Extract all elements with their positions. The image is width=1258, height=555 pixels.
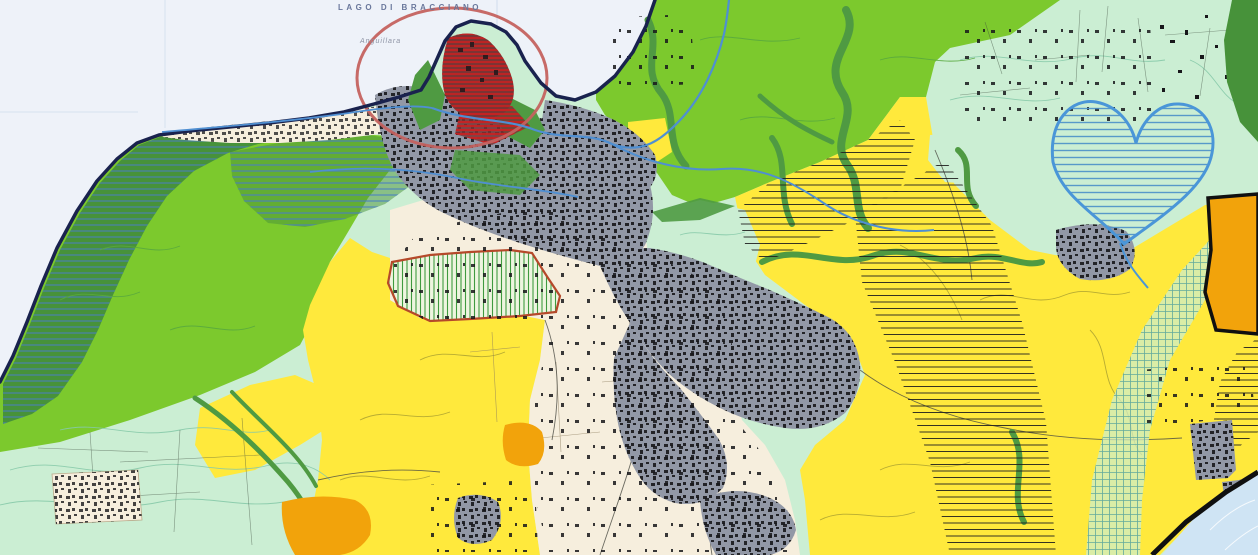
zoning-map: LAGO DI BRACCIANO Anguillara <box>0 0 1258 555</box>
map-canvas[interactable] <box>0 0 1258 555</box>
zone-orange-patch-south <box>282 496 371 555</box>
zone-settlement-southwest <box>52 470 142 524</box>
zone-orange-east <box>1205 194 1258 334</box>
zone-orange-patch-center <box>503 423 545 467</box>
